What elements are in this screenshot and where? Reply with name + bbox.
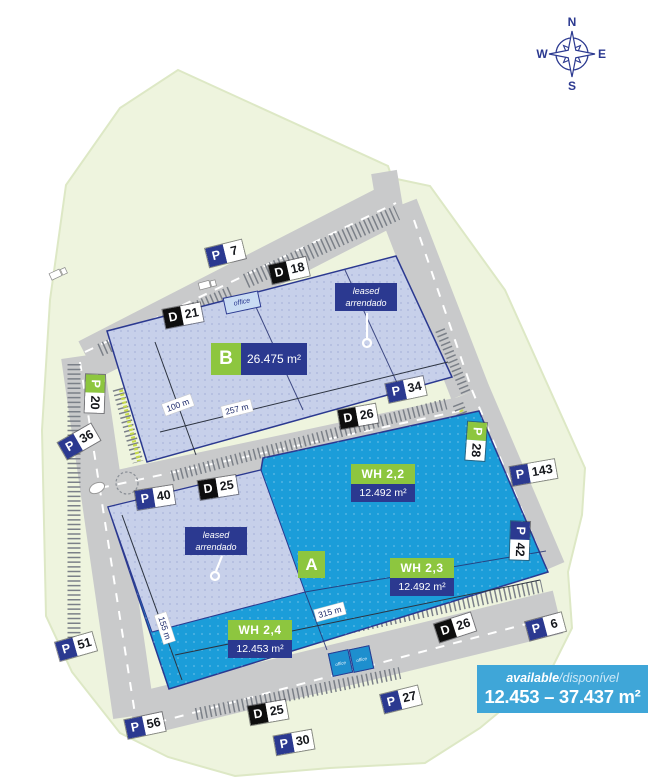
availability-title: available/disponível (506, 671, 619, 686)
parking-icon: P (467, 422, 487, 441)
compass-west-label: W (536, 47, 547, 61)
parking-icon: P (510, 521, 530, 540)
parking-badge-28: P28 (465, 422, 487, 461)
parking-icon: P (85, 374, 105, 393)
leased-callout-building-b: leased arrendado (335, 283, 397, 311)
leased-callout-building-a: leased arrendado (185, 527, 247, 555)
unit-label-wh22: WH 2,2 12.492 m² (351, 464, 415, 502)
logistics-park-site-plan: N E S W B 26.475 m² A WH 2,2 12.492 m² W… (0, 0, 656, 782)
parking-badge-42: P42 (510, 521, 530, 560)
availability-box: available/disponível 12.453 – 37.437 m² (477, 665, 648, 713)
building-b-code: B (211, 343, 241, 375)
building-b-label: B 26.475 m² (211, 343, 307, 375)
compass-south-label: S (568, 79, 576, 93)
building-a-code: A (298, 551, 325, 578)
unit-label-wh24: WH 2,4 12.453 m² (228, 620, 292, 658)
building-b-area: 26.475 m² (241, 343, 307, 375)
compass-star-icon (549, 31, 595, 77)
parking-badge-20: P20 (85, 374, 105, 413)
compass-north-label: N (568, 15, 577, 29)
availability-range: 12.453 – 37.437 m² (484, 686, 640, 708)
unit-label-wh23: WH 2,3 12.492 m² (390, 558, 454, 596)
building-a-label: A (298, 551, 325, 578)
compass-east-label: E (598, 47, 606, 61)
